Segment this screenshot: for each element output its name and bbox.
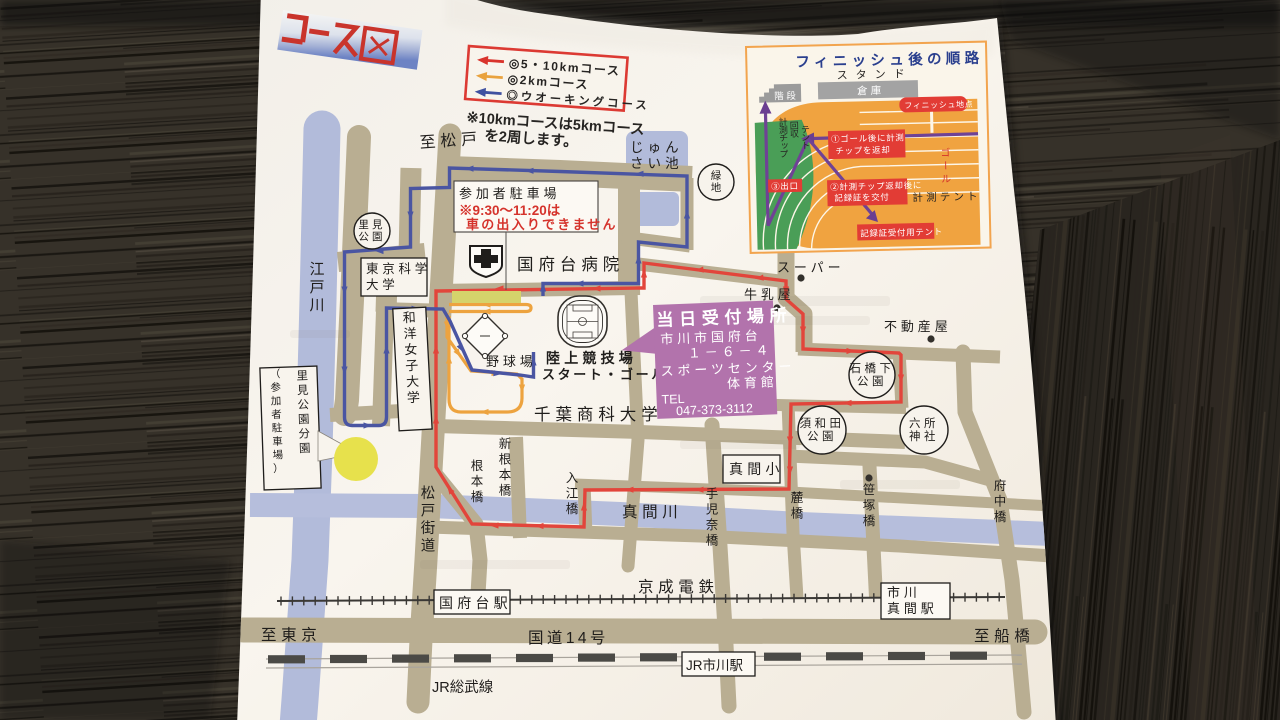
svg-text:公: 公 bbox=[297, 398, 309, 411]
svg-text:野球場: 野球場 bbox=[486, 354, 537, 369]
svg-text:江: 江 bbox=[566, 487, 579, 501]
svg-text:根: 根 bbox=[471, 459, 484, 473]
svg-text:本: 本 bbox=[471, 475, 484, 489]
svg-text:里: 里 bbox=[296, 369, 308, 382]
svg-text:計測テント: 計測テント bbox=[912, 190, 981, 205]
svg-text:国道14号: 国道14号 bbox=[528, 629, 609, 647]
svg-text:大学: 大学 bbox=[366, 277, 399, 292]
svg-text:川: 川 bbox=[309, 297, 324, 314]
svg-text:奈: 奈 bbox=[706, 518, 719, 532]
svg-text:真間駅: 真間駅 bbox=[887, 601, 938, 616]
svg-text:橋: 橋 bbox=[706, 534, 719, 548]
svg-text:※9:30〜11:20は: ※9:30〜11:20は bbox=[459, 203, 561, 218]
svg-text:大: 大 bbox=[406, 374, 420, 390]
svg-text:加: 加 bbox=[271, 395, 282, 407]
svg-text:公園: 公園 bbox=[358, 231, 385, 243]
svg-text:陸上競技場: 陸上競技場 bbox=[546, 350, 637, 366]
svg-text:園: 園 bbox=[298, 413, 310, 426]
svg-text:047-373-3112: 047-373-3112 bbox=[676, 401, 753, 418]
svg-text:公園: 公園 bbox=[807, 430, 837, 443]
svg-text:市川: 市川 bbox=[887, 585, 921, 600]
svg-text:）: ） bbox=[273, 463, 284, 475]
svg-text:倉庫: 倉庫 bbox=[857, 84, 885, 98]
svg-text:塚: 塚 bbox=[863, 499, 876, 513]
svg-text:橋: 橋 bbox=[994, 510, 1007, 524]
svg-text:車の出入りできません: 車の出入りできません bbox=[466, 217, 618, 232]
svg-text:東京科学: 東京科学 bbox=[366, 261, 431, 276]
svg-text:戸: 戸 bbox=[421, 504, 436, 520]
svg-text:六所: 六所 bbox=[909, 417, 939, 430]
svg-text:体育館: 体育館 bbox=[727, 374, 778, 391]
svg-text:②計測チップ返却後に: ②計測チップ返却後に bbox=[830, 180, 922, 192]
svg-text:国府台駅: 国府台駅 bbox=[439, 595, 512, 611]
svg-text:参: 参 bbox=[270, 381, 281, 394]
svg-text:女: 女 bbox=[404, 342, 418, 358]
svg-text:見: 見 bbox=[297, 384, 309, 397]
svg-text:洋: 洋 bbox=[403, 326, 417, 342]
svg-text:園: 園 bbox=[299, 442, 311, 455]
svg-text:JR総武線: JR総武線 bbox=[432, 679, 493, 696]
svg-text:府: 府 bbox=[994, 478, 1007, 493]
svg-text:じゅん: じゅん bbox=[630, 140, 683, 155]
svg-text:③出口: ③出口 bbox=[771, 181, 799, 192]
svg-text:参加者駐車場: 参加者駐車場 bbox=[459, 186, 560, 201]
svg-text:笹: 笹 bbox=[863, 482, 876, 497]
svg-text:松: 松 bbox=[421, 485, 436, 502]
svg-text:車: 車 bbox=[272, 435, 283, 448]
svg-text:江: 江 bbox=[309, 261, 324, 278]
svg-text:千葉商科大学: 千葉商科大学 bbox=[534, 405, 663, 424]
svg-text:石橋下: 石橋下 bbox=[850, 361, 895, 375]
svg-text:階段: 階段 bbox=[774, 90, 799, 103]
svg-text:スタート・ゴール: スタート・ゴール bbox=[542, 367, 667, 382]
svg-text:子: 子 bbox=[405, 358, 419, 374]
svg-text:和: 和 bbox=[402, 310, 416, 326]
svg-text:さい池: さい池 bbox=[630, 156, 683, 171]
svg-text:記録証受付用テント: 記録証受付用テント bbox=[860, 227, 943, 239]
svg-text:分: 分 bbox=[298, 427, 310, 440]
svg-text:スタンド: スタンド bbox=[837, 67, 913, 82]
svg-text:戸: 戸 bbox=[309, 279, 324, 296]
svg-text:スーパー: スーパー bbox=[777, 260, 844, 275]
svg-text:道: 道 bbox=[421, 538, 436, 555]
svg-text:地: 地 bbox=[711, 181, 722, 194]
svg-text:国府台病院: 国府台病院 bbox=[517, 255, 624, 274]
svg-text:入: 入 bbox=[566, 471, 579, 485]
svg-text:新: 新 bbox=[499, 436, 512, 451]
svg-text:神社: 神社 bbox=[909, 429, 939, 443]
svg-text:根: 根 bbox=[499, 453, 512, 467]
svg-text:者: 者 bbox=[271, 409, 282, 421]
svg-text:橋: 橋 bbox=[791, 507, 804, 521]
svg-text:JR市川駅: JR市川駅 bbox=[686, 657, 743, 673]
svg-text:里見: 里見 bbox=[358, 219, 385, 231]
svg-text:至船橋: 至船橋 bbox=[974, 627, 1034, 645]
svg-text:街: 街 bbox=[421, 520, 436, 537]
svg-text:真間小: 真間小 bbox=[729, 461, 784, 477]
svg-text:駐: 駐 bbox=[272, 421, 283, 434]
svg-text:麓: 麓 bbox=[791, 491, 804, 505]
svg-text:①ゴール後に計測: ①ゴール後に計測 bbox=[831, 132, 905, 144]
svg-text:京成電鉄: 京成電鉄 bbox=[638, 578, 719, 596]
svg-text:中: 中 bbox=[994, 494, 1007, 509]
svg-text:学: 学 bbox=[407, 390, 421, 406]
svg-text:至東京: 至東京 bbox=[261, 626, 321, 644]
svg-text:真間川: 真間川 bbox=[622, 503, 682, 521]
svg-text:牛乳屋: 牛乳屋 bbox=[744, 287, 795, 302]
svg-text:橋: 橋 bbox=[499, 484, 512, 498]
svg-text:公園: 公園 bbox=[857, 375, 887, 388]
svg-text:緑: 緑 bbox=[711, 169, 722, 182]
svg-text:児: 児 bbox=[706, 503, 719, 517]
svg-text:本: 本 bbox=[499, 468, 512, 482]
svg-text:不動産屋: 不動産屋 bbox=[884, 319, 952, 334]
svg-text:須和田: 須和田 bbox=[800, 416, 845, 430]
svg-text:回収: 回収 bbox=[789, 121, 799, 139]
svg-text:ゴール: ゴール bbox=[938, 146, 951, 186]
svg-text:橋: 橋 bbox=[566, 502, 579, 516]
svg-text:チップを返却: チップを返却 bbox=[835, 145, 890, 156]
svg-text:手: 手 bbox=[706, 487, 719, 501]
svg-text:計測チップ: 計測チップ bbox=[778, 116, 789, 158]
svg-text:記録証を交付: 記録証を交付 bbox=[834, 192, 889, 203]
svg-text:橋: 橋 bbox=[863, 514, 876, 528]
svg-text:場: 場 bbox=[272, 448, 283, 461]
svg-text:橋: 橋 bbox=[471, 490, 484, 504]
svg-text:（: （ bbox=[270, 368, 281, 380]
svg-text:フィニッシュ地点: フィニッシュ地点 bbox=[904, 99, 973, 111]
svg-text:テント: テント bbox=[800, 124, 811, 149]
